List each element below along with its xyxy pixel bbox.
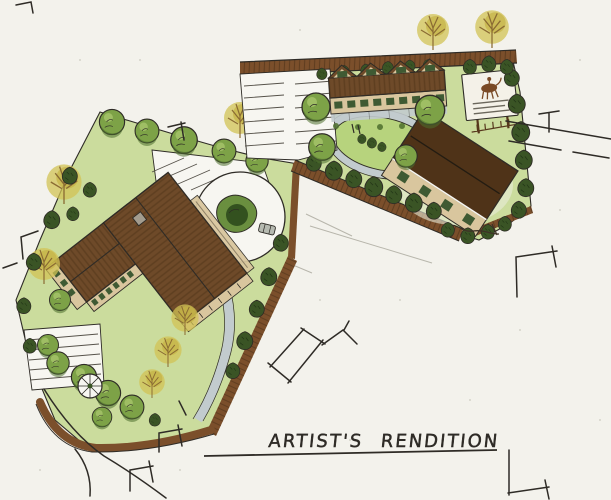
roundabout-island-center xyxy=(226,204,248,226)
site-plan-drawing: ARTIST'S RENDITION xyxy=(0,0,611,500)
caption-text: ARTIST'S RENDITION xyxy=(267,431,500,452)
gazebo-icon xyxy=(78,374,102,398)
site-plan-canvas: ARTIST'S RENDITION xyxy=(0,0,611,500)
